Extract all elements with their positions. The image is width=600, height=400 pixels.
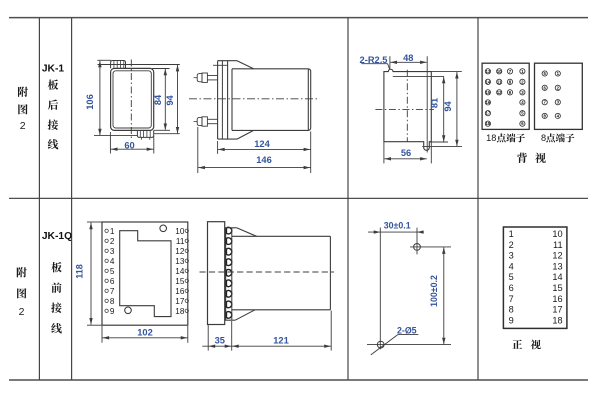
svg-text:14: 14: [552, 272, 562, 282]
svg-text:8: 8: [509, 305, 514, 315]
svg-text:18: 18: [175, 307, 185, 316]
svg-text:17: 17: [552, 305, 562, 315]
svg-text:14: 14: [175, 267, 185, 276]
svg-text:30±0.1: 30±0.1: [384, 221, 411, 231]
svg-text:48: 48: [403, 53, 413, 63]
svg-text:146: 146: [256, 155, 272, 165]
svg-text:1: 1: [509, 229, 514, 239]
svg-text:60: 60: [124, 140, 134, 150]
svg-text:6: 6: [509, 283, 514, 293]
svg-text:84: 84: [153, 94, 163, 105]
svg-text:94: 94: [443, 101, 453, 112]
svg-text:15: 15: [486, 90, 491, 95]
svg-text:13: 13: [175, 257, 185, 266]
svg-text:94: 94: [165, 95, 175, 106]
svg-text:118: 118: [75, 264, 85, 279]
svg-text:2-Ø5: 2-Ø5: [397, 326, 417, 336]
svg-text:11: 11: [553, 240, 563, 250]
svg-text:13: 13: [486, 69, 491, 74]
svg-text:4: 4: [110, 257, 115, 266]
svg-text:12: 12: [497, 90, 502, 95]
svg-text:16: 16: [175, 287, 185, 296]
svg-text:16: 16: [486, 100, 491, 105]
svg-text:12: 12: [175, 247, 185, 256]
svg-text:17: 17: [486, 111, 491, 116]
svg-text:102: 102: [137, 327, 153, 337]
svg-text:18: 18: [486, 133, 496, 143]
svg-text:7: 7: [509, 294, 514, 304]
svg-text:14: 14: [486, 79, 491, 84]
svg-text:11: 11: [176, 237, 185, 246]
svg-text:9: 9: [509, 316, 514, 326]
svg-text:35: 35: [215, 336, 225, 346]
svg-text:2: 2: [509, 240, 514, 250]
svg-text:18: 18: [552, 316, 562, 326]
svg-text:100±0.2: 100±0.2: [429, 275, 439, 307]
svg-text:7: 7: [110, 287, 115, 296]
svg-text:5: 5: [110, 267, 115, 276]
svg-text:2: 2: [20, 120, 26, 132]
svg-text:10: 10: [552, 229, 562, 239]
svg-text:56: 56: [401, 148, 411, 158]
svg-text:106: 106: [85, 94, 95, 110]
svg-text:JK-1Q: JK-1Q: [42, 231, 72, 242]
svg-text:3: 3: [110, 247, 115, 256]
svg-text:6: 6: [110, 277, 115, 286]
svg-text:12: 12: [552, 251, 562, 261]
svg-text:2: 2: [110, 237, 115, 246]
svg-text:JK-1: JK-1: [42, 64, 65, 75]
svg-text:2: 2: [19, 306, 25, 318]
svg-text:124: 124: [254, 139, 270, 149]
svg-text:13: 13: [552, 261, 562, 271]
svg-text:1: 1: [110, 227, 115, 236]
svg-text:15: 15: [552, 283, 562, 293]
svg-text:16: 16: [552, 294, 562, 304]
svg-text:3: 3: [509, 251, 514, 261]
svg-text:10: 10: [175, 227, 185, 236]
svg-text:8: 8: [541, 133, 546, 143]
svg-text:10: 10: [497, 69, 502, 74]
svg-text:121: 121: [273, 336, 289, 346]
svg-text:8: 8: [110, 297, 115, 306]
svg-text:18: 18: [486, 121, 491, 126]
svg-text:4: 4: [509, 261, 514, 271]
svg-text:9: 9: [110, 307, 115, 316]
svg-text:17: 17: [175, 297, 185, 306]
svg-text:81: 81: [429, 98, 439, 108]
svg-text:11: 11: [497, 79, 502, 84]
svg-text:5: 5: [509, 272, 514, 282]
svg-text:15: 15: [175, 277, 185, 286]
